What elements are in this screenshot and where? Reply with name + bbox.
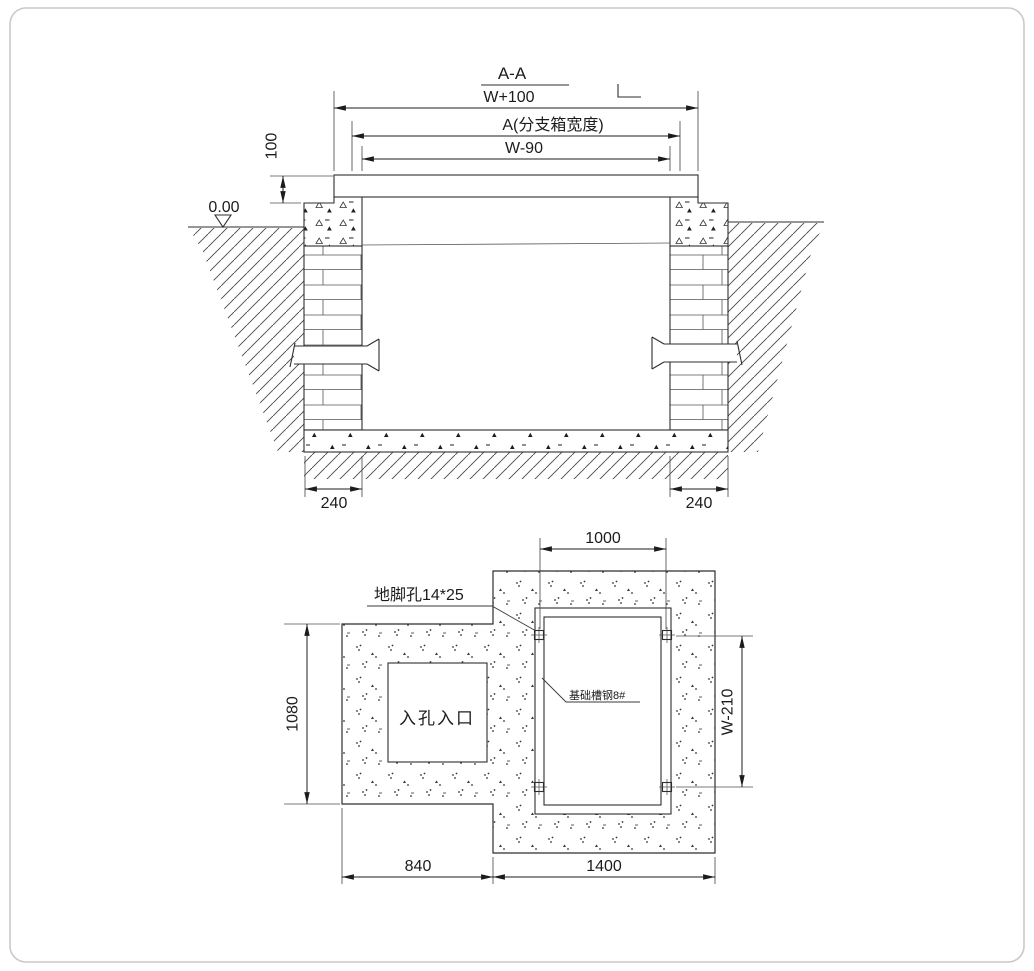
brick-wall-left [304,246,362,430]
soil-hatch-bottom [304,452,728,479]
dim-bottom-right-label: 1400 [586,858,622,875]
bottom-slab [304,430,728,452]
dim-wall-right-label: 240 [686,495,713,512]
box-base-plate [334,175,698,197]
dim-plate-height-label: 100 [264,133,281,160]
dim-clear-width-label: W-90 [505,140,543,157]
brick-wall-right [670,246,728,430]
dim-bottom-left-label: 840 [405,858,432,875]
level-mark-label: 0.00 [208,199,239,216]
manhole-label: 入孔入口 [399,709,475,728]
dim-overall-width-label: W+100 [483,89,534,106]
dim-left-label: 1080 [285,696,302,732]
dim-box-width-label: A(分支箱宽度) [502,116,603,134]
dim-wall-left-label: 240 [321,495,348,512]
concrete-collar-left [304,197,362,246]
concrete-collar-right [670,197,728,246]
dim-right-label: W-210 [720,688,737,735]
drawing-page: A-A W+100 A(分支箱宽度) W-90 100 0.00 [0,0,1034,971]
anchor-hole-label: 地脚孔14*25 [374,586,464,604]
foundation-engineering-drawing: A-A W+100 A(分支箱宽度) W-90 100 0.00 [0,0,1034,971]
channel-steel-label: 基础槽钢8# [569,689,626,702]
channel-frame-outer [535,608,671,814]
section-title: A-A [498,64,527,83]
dim-top-label: 1000 [585,530,621,547]
